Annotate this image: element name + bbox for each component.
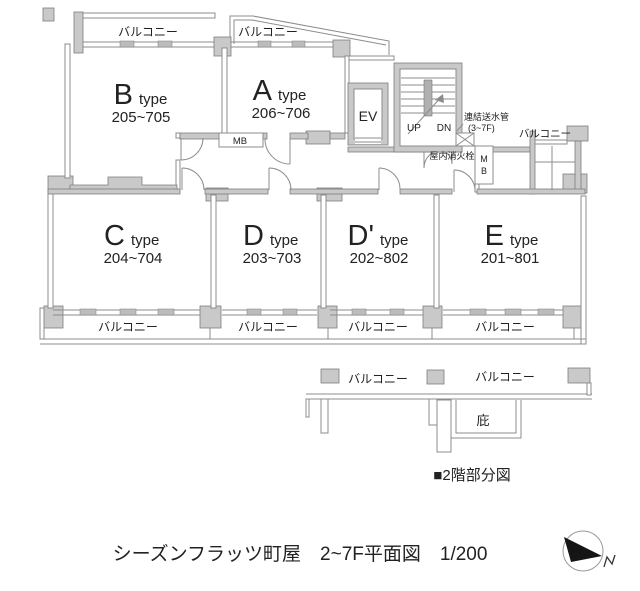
partial-column-left [321, 399, 328, 433]
unit-label-a: A type 206~706 [252, 75, 311, 122]
svg-text:B: B [114, 79, 133, 111]
hydrant-label: 屋内消火栓 [429, 150, 474, 161]
canopy-label: 庇 [476, 413, 489, 428]
meter-box-m: M [480, 154, 488, 164]
door-unit-c [182, 168, 204, 190]
door-unit-d [269, 168, 291, 190]
unit-label-d2: D' type 202~802 [348, 220, 409, 267]
balcony-label-e: バルコニー [475, 320, 535, 334]
floor-plan-drawing: EV UP DN M B [0, 0, 640, 591]
staircase: UP DN [394, 63, 462, 152]
svg-text:C: C [104, 220, 125, 252]
svg-text:type: type [139, 91, 167, 108]
door-unit-d2 [379, 168, 400, 190]
stairs-down-label: DN [437, 123, 451, 134]
svg-text:205~705: 205~705 [112, 109, 171, 126]
partial-column-mid [429, 399, 437, 425]
partial-plan-caption: ■2階部分図 [433, 467, 510, 484]
svg-text:E: E [485, 220, 504, 252]
meter-box-shaft: M B [475, 146, 493, 184]
svg-text:204~704: 204~704 [104, 250, 163, 267]
svg-text:type: type [278, 87, 306, 104]
floor-plan-page: EV UP DN M B [0, 0, 640, 591]
balcony-label-right: バルコニー [519, 128, 571, 140]
second-floor-partial-plan: バルコニー バルコニー 庇 ■2階部分図 [306, 368, 592, 484]
compass-icon [563, 531, 615, 571]
svg-text:202~802: 202~802 [350, 250, 409, 267]
balcony-label-c: バルコニー [98, 320, 158, 334]
balcony-label-top-a: バルコニー [238, 25, 298, 39]
unit-label-b: B type 205~705 [112, 79, 171, 126]
balcony-label-top-b: バルコニー [118, 25, 178, 39]
door-unit-e [454, 170, 475, 192]
structural-columns [43, 8, 588, 328]
window-bands-bottom [53, 309, 563, 315]
svg-text:D': D' [348, 220, 374, 252]
door-unit-a [265, 139, 290, 164]
standpipe-floors-label: (3~7F) [468, 123, 495, 133]
svg-text:type: type [270, 232, 298, 249]
standpipe-label: 連結送水管 [464, 111, 509, 122]
svg-text:type: type [131, 232, 159, 249]
compass-needle [564, 537, 602, 562]
meter-box-label: MB [233, 136, 247, 147]
plan-title: シーズンフラッツ町屋 2~7F平面図 1/200 [113, 543, 488, 565]
svg-text:206~706: 206~706 [252, 105, 311, 122]
door-unit-b [181, 138, 203, 160]
partial-balcony-label-left: バルコニー [348, 372, 408, 386]
stairs-up-label: UP [407, 123, 421, 134]
stair-rail [424, 80, 432, 116]
partial-balcony-label-right: バルコニー [475, 370, 535, 384]
svg-text:type: type [510, 232, 538, 249]
balcony-label-d: バルコニー [238, 320, 298, 334]
svg-text:A: A [253, 75, 273, 107]
svg-text:D: D [243, 220, 264, 252]
unit-label-e: E type 201~801 [481, 220, 540, 267]
balcony-label-d2: バルコニー [348, 320, 408, 334]
unit-label-d: D type 203~703 [243, 220, 302, 267]
elevator-label: EV [359, 108, 378, 124]
main-floor-plan: EV UP DN M B [40, 8, 588, 344]
svg-text:type: type [380, 232, 408, 249]
compass-north-mark [604, 555, 615, 567]
elevator: EV [348, 83, 388, 145]
unit-label-c: C type 204~704 [104, 220, 163, 267]
svg-text:201~801: 201~801 [481, 250, 540, 267]
svg-text:203~703: 203~703 [243, 250, 302, 267]
meter-box-b: B [481, 166, 487, 176]
